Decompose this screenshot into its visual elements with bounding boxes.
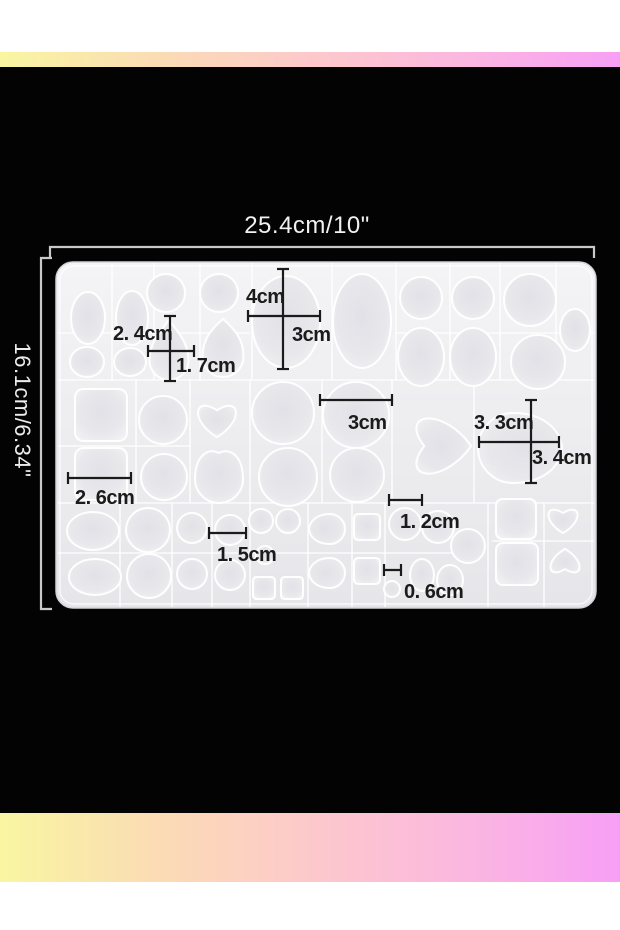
mold-cavity-ellipse — [69, 559, 121, 595]
dimension-label: 3. 4cm — [532, 447, 591, 469]
mold-cavity-square — [281, 577, 303, 599]
mold-cavity-circle — [451, 529, 485, 563]
mold-cavity-square — [496, 499, 536, 539]
mold-cavity-circle — [511, 335, 565, 389]
dimension-label: 1. 5cm — [217, 544, 276, 566]
mold-cavity-circle — [200, 274, 238, 312]
mold-cavity-drop — [309, 558, 345, 588]
mold-cavity-circle — [177, 513, 207, 543]
mold-cavity-circle — [384, 581, 400, 597]
mold-cavity-square — [354, 514, 380, 540]
mold-cavity-circle — [452, 277, 494, 319]
mold-cavity-ellipse — [398, 328, 444, 386]
dimension-label: 0. 6cm — [404, 581, 463, 603]
mold-cavity-ellipse — [114, 348, 146, 376]
mold-cavity-circle — [276, 509, 300, 533]
mold-cavity-square — [253, 577, 275, 599]
mold-cavity-square — [354, 558, 380, 584]
mold-cavity-ellipse — [67, 512, 119, 550]
dimension-label: 1. 2cm — [400, 511, 459, 533]
mold-cavity-circle — [259, 448, 317, 506]
mold-cavity-circle — [127, 554, 171, 598]
dimension-label: 3. 3cm — [474, 412, 533, 434]
dimension-label: 2. 4cm — [113, 323, 172, 345]
mold-cavity-circle — [139, 396, 187, 444]
mold-cavity-circle — [177, 559, 207, 589]
mold-cavity-ellipse — [560, 309, 590, 351]
dimension-label: 4cm — [246, 286, 285, 308]
mold-cavity-circle — [504, 274, 556, 326]
mold-cavity-drop — [195, 451, 243, 503]
mold-cavity-drop — [309, 514, 345, 544]
mold-cavity-circle — [252, 382, 314, 444]
bottom-gradient-strip — [0, 813, 620, 882]
mold-cavity-square — [75, 389, 127, 441]
bottom-white-band — [0, 882, 620, 930]
mold-cavity-circle — [400, 277, 442, 319]
height-bracket — [41, 258, 52, 609]
mold-cavity-ellipse — [70, 347, 104, 377]
mold-cavity-circle — [141, 454, 187, 500]
mold-cavity-circle — [215, 515, 245, 545]
mold-cavity-ellipse — [450, 328, 496, 386]
dimension-label: 3cm — [292, 324, 331, 346]
mold-cavity-ellipse — [333, 274, 391, 368]
dimension-label: 3cm — [348, 412, 387, 434]
dimension-label: 1. 7cm — [176, 355, 235, 377]
mold-cavity-circle — [330, 448, 384, 502]
mold-cavity-circle — [147, 274, 185, 312]
product-image: 25.4cm/10" 16.1cm/6.34" — [0, 0, 620, 930]
mold-figure: 4cm3cm2. 4cm1. 7cm2. 6cm3cm3. 3cm3. 4cm1… — [0, 0, 620, 930]
mold-cavity-circle — [126, 508, 170, 552]
mold-cavity-circle — [249, 509, 273, 533]
mold-cavity-square — [496, 543, 538, 585]
mold-cavity-ellipse — [71, 292, 105, 344]
width-bracket — [50, 247, 594, 258]
dimension-label: 2. 6cm — [75, 487, 134, 509]
